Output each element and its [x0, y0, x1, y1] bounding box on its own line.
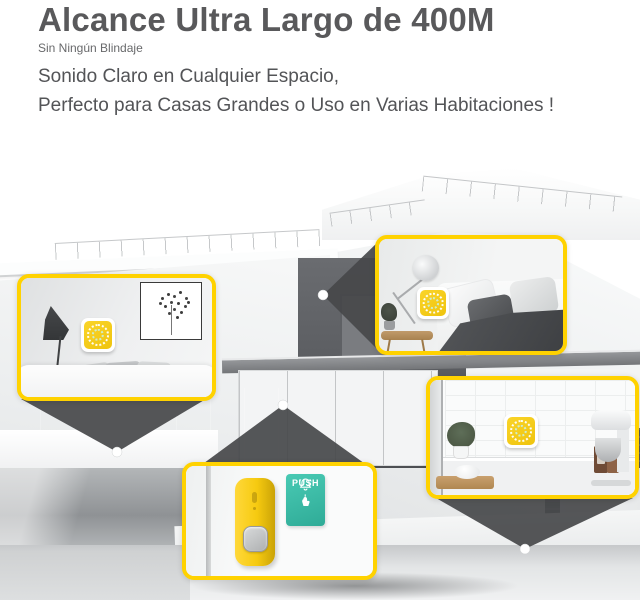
plant: [447, 422, 475, 448]
plant-pot: [453, 446, 469, 459]
receiver-ring-icon: [420, 290, 446, 316]
push-sign-label: PUSH: [292, 478, 319, 488]
glass-balcony-left: [0, 468, 195, 554]
floor-lamp-shade: [43, 306, 69, 340]
doorbell-transmitter: [235, 478, 275, 566]
mixer-head: [591, 410, 631, 430]
plant-pot: [384, 321, 395, 330]
mixer-base: [591, 480, 631, 486]
kitchen-photo: [430, 380, 635, 495]
tagline-line-2: Perfecto para Casas Grandes o Uso en Var…: [38, 95, 554, 117]
doorbell-push-button: [243, 526, 268, 552]
wall-art: [140, 282, 202, 340]
bowl: [454, 465, 480, 479]
led-indicator: [252, 492, 257, 503]
callout-bedroom: [375, 235, 567, 355]
tagline-line-1: Sonido Claro en Cualquier Espacio,: [38, 66, 339, 88]
callout-kitchen: [426, 376, 639, 499]
doorbell-receiver: [504, 414, 538, 448]
press-hand-icon: [298, 492, 313, 508]
desk-lamp-head: [413, 255, 439, 281]
doorbell-receiver: [417, 287, 449, 319]
doorbell-receiver: [81, 318, 115, 352]
page-subtitle: Sin Ningún Blindaje: [38, 41, 143, 55]
product-infographic: Alcance Ultra Largo de 400M Sin Ningún B…: [0, 0, 640, 600]
plant: [381, 303, 397, 321]
stand-mixer: [591, 410, 633, 486]
bed: [17, 365, 216, 401]
led-dot: [253, 507, 256, 510]
receiver-ring-icon: [84, 321, 112, 349]
bedroom-photo: [379, 239, 563, 351]
stool-leg: [421, 339, 427, 355]
page-title: Alcance Ultra Largo de 400M: [38, 1, 495, 39]
stool-leg: [385, 339, 391, 355]
entrance-photo: PUSH: [186, 466, 373, 576]
living-room-photo: [21, 278, 212, 397]
callout-living-room: [17, 274, 216, 401]
callout-doorbell-button: PUSH: [182, 462, 377, 580]
receiver-ring-icon: [507, 417, 535, 445]
ground-base-left: [0, 552, 190, 600]
push-sign: PUSH: [286, 474, 325, 526]
door-frame-trim: [206, 466, 211, 576]
